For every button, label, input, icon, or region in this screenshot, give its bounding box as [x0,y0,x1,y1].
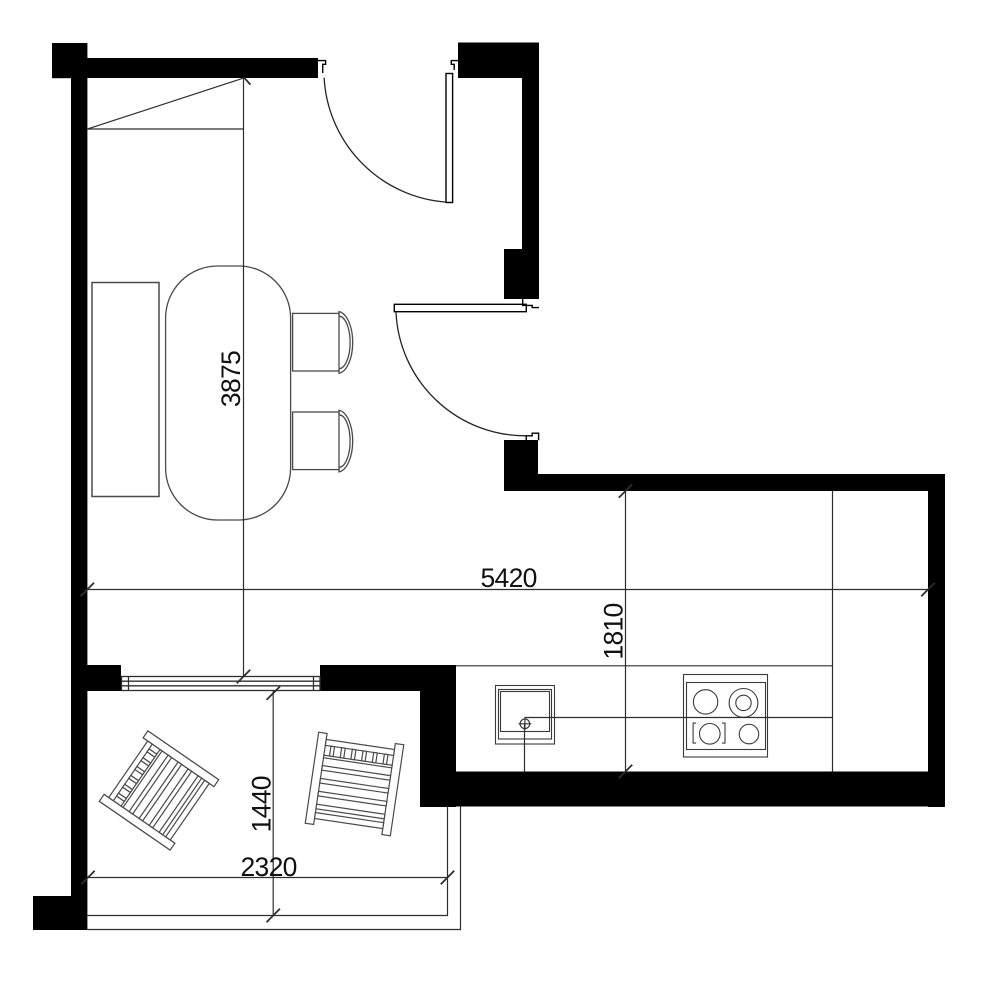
svg-text:5420: 5420 [481,563,537,593]
svg-text:2320: 2320 [241,852,297,882]
svg-text:1440: 1440 [246,776,276,832]
svg-text:1810: 1810 [598,603,628,659]
svg-text:3875: 3875 [216,351,246,407]
